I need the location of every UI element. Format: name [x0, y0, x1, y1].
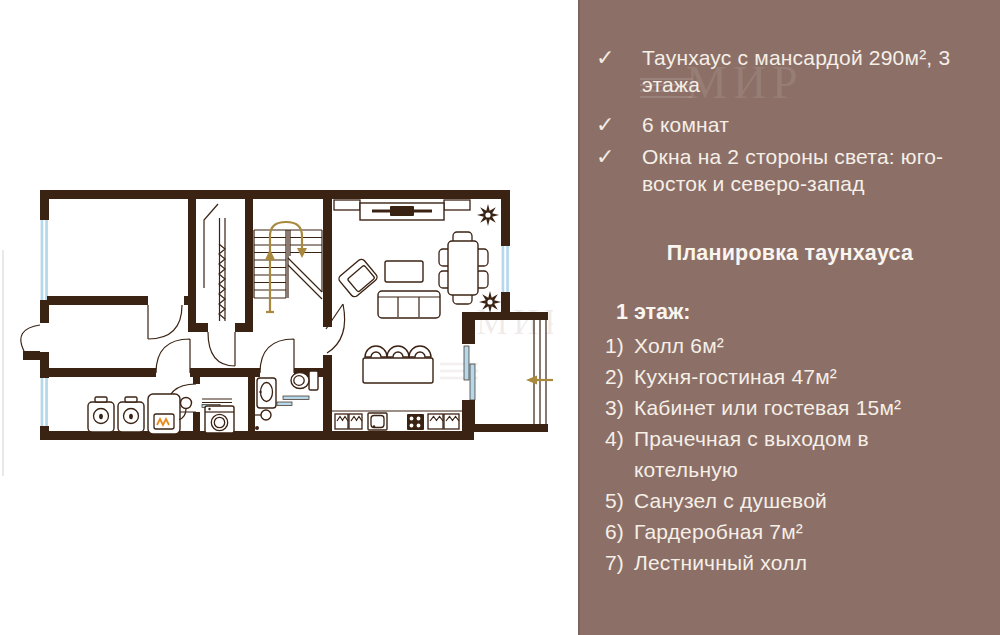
wardrobe-rail-icon — [204, 204, 225, 321]
list-item: 4) Прачечная с выходом в котельную — [594, 423, 989, 485]
armchair-icon — [337, 258, 378, 298]
room-label: Лестничный холл — [634, 547, 934, 578]
plant-icon — [479, 291, 501, 313]
boiler-icon — [148, 394, 192, 434]
room-number: 1) — [594, 330, 624, 361]
exterior-door — [21, 325, 40, 360]
feature-text: 6 комнат — [642, 111, 968, 138]
toilet-icon — [291, 371, 318, 390]
dining-table-icon — [439, 232, 488, 304]
panel-heading: Планировка таунхауса — [580, 241, 1000, 266]
room-number: 2) — [594, 361, 624, 392]
checkmark-icon: ✓ — [596, 111, 626, 138]
flyer: МИР — [0, 0, 1000, 635]
room-list: 1) Холл 6м² 2) Кухня-гостиная 47м² 3) Ка… — [594, 330, 989, 578]
coffee-table-icon — [385, 261, 423, 282]
kitchen-sink-icon — [368, 413, 387, 430]
checkmark-icon: ✓ — [596, 44, 626, 71]
svg-text:МИР: МИР — [476, 302, 553, 342]
floor-plan: МИР — [18, 188, 553, 446]
feature-item: ✓ Таунхаус с мансардой 290м², 3 этажа — [590, 44, 990, 98]
checkmark-icon: ✓ — [596, 143, 626, 170]
room-label: Гардеробная 7м² — [634, 516, 934, 547]
room-label: Кабинет или гостевая 15м² — [634, 392, 934, 423]
room-label: Прачечная с выходом в котельную — [634, 423, 934, 485]
list-item: 2) Кухня-гостиная 47м² — [594, 361, 989, 392]
glass-door-icon — [464, 346, 475, 400]
room-number: 6) — [594, 516, 624, 547]
room-label: Санузел с душевой — [634, 485, 934, 516]
room-label: Холл 6м² — [634, 330, 934, 361]
room-number: 5) — [594, 485, 624, 516]
list-item: 6) Гардеробная 7м² — [594, 516, 989, 547]
page-edge-line — [2, 250, 4, 476]
bathroom-sink-icon — [257, 378, 276, 408]
feature-text: Окна на 2 стороны света: юго-восток и се… — [642, 143, 968, 197]
kitchen-counter — [332, 411, 462, 429]
water-heater-icon — [88, 397, 114, 432]
window-icon — [501, 246, 510, 292]
room-label: Кухня-гостиная 47м² — [634, 361, 934, 392]
feature-text: Таунхаус с мансардой 290м², 3 этажа — [642, 44, 968, 98]
floor-label: 1 этаж: — [616, 300, 690, 325]
stove-icon — [407, 414, 424, 430]
feature-item: ✓ Окна на 2 стороны света: юго-восток и … — [590, 143, 990, 197]
window-icon — [40, 220, 49, 300]
room-number: 7) — [594, 547, 624, 578]
washing-machine-icon — [205, 406, 234, 433]
feature-item: ✓ 6 комнат — [590, 111, 990, 138]
room-number: 3) — [594, 392, 624, 423]
room-number: 4) — [594, 423, 624, 485]
list-item: 1) Холл 6м² — [594, 330, 989, 361]
list-item: 7) Лестничный холл — [594, 547, 989, 578]
info-panel: МИР ✓ Таунхаус с мансардой 290м², 3 этаж… — [578, 0, 1000, 635]
kitchen-island-icon — [363, 358, 433, 383]
bar-stool-icon — [365, 346, 431, 357]
window-icon — [40, 378, 49, 426]
list-item: 3) Кабинет или гостевая 15м² — [594, 392, 989, 423]
list-item: 5) Санузел с душевой — [594, 485, 989, 516]
tv-console-icon — [334, 200, 470, 220]
sofa-icon — [378, 291, 440, 318]
stairs-icon — [254, 230, 322, 299]
plant-icon — [477, 204, 499, 226]
water-heater-icon — [118, 397, 144, 432]
